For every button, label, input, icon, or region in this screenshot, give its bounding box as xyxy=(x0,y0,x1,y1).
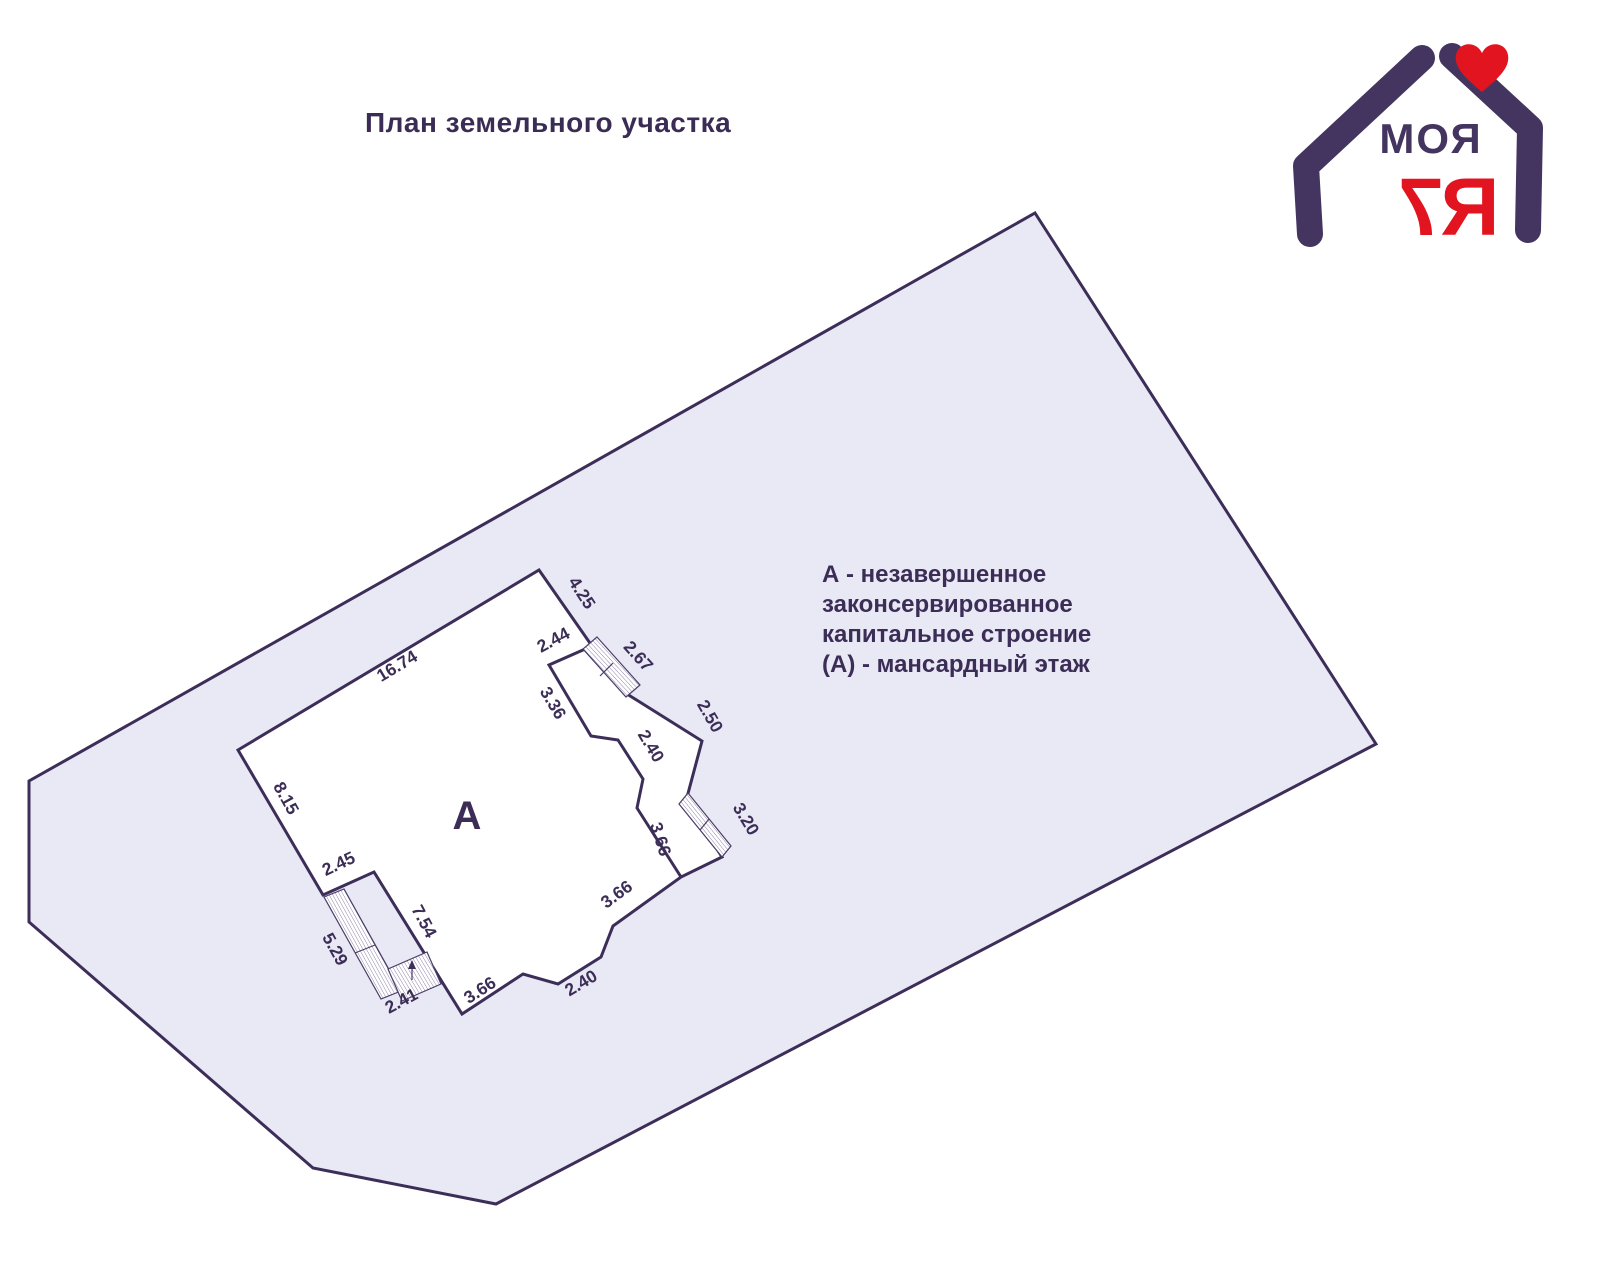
legend-line-3: капитальное строение xyxy=(822,621,1091,648)
logo-letter-ya: Я xyxy=(1441,162,1500,253)
plan-canvas: План земельного участка xyxy=(0,0,1600,1262)
logo-word-top: МОЯ xyxy=(1379,115,1482,162)
land-plot-plan-page: План земельного участка xyxy=(0,0,1600,1262)
legend-line-1: А - незавершенное xyxy=(822,561,1046,588)
building-label: А xyxy=(453,794,482,838)
page-title: План земельного участка xyxy=(365,107,731,138)
logo-digit-mirrored: 7 xyxy=(1398,162,1444,253)
company-logo: МОЯ 7 Я xyxy=(1306,44,1530,253)
legend-line-4: (А) - мансардный этаж xyxy=(822,651,1091,678)
svg-text:7: 7 xyxy=(1398,162,1444,253)
legend-line-2: законсервированное xyxy=(822,591,1073,618)
